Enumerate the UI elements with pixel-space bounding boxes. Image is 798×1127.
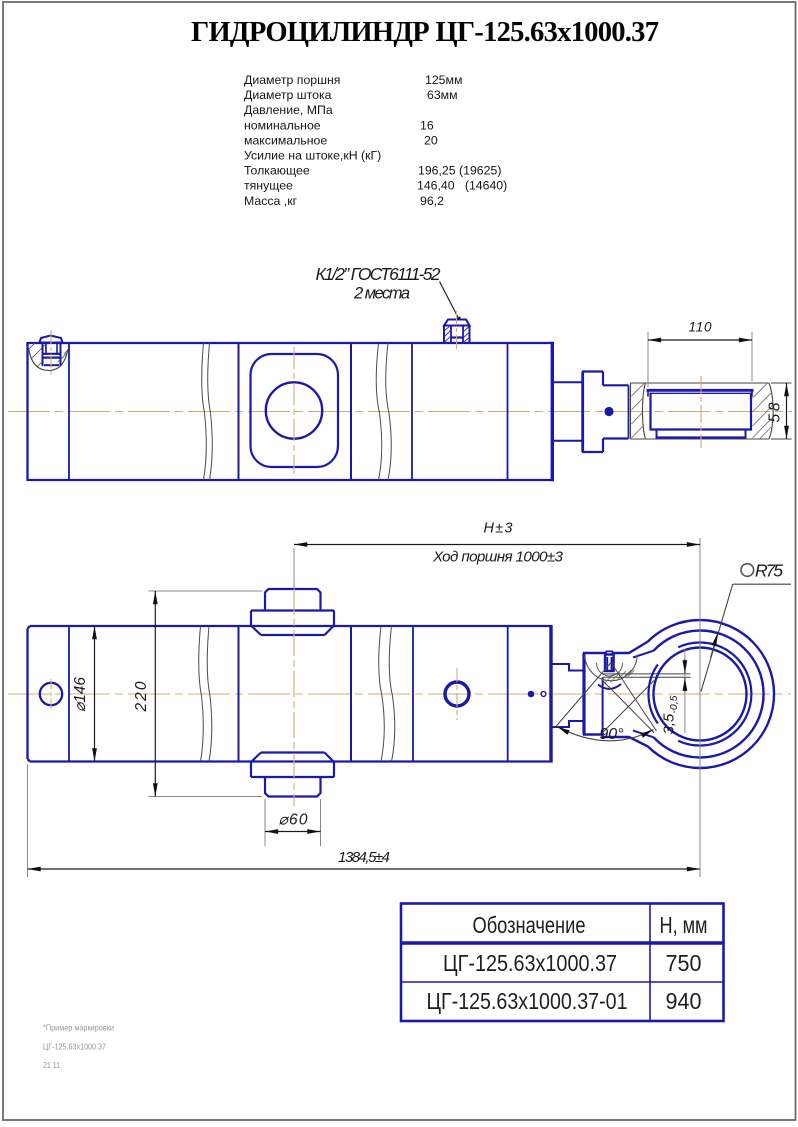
svg-text:ЦГ-125.63х1000.37: ЦГ-125.63х1000.37 <box>43 1042 106 1052</box>
svg-text:Ход поршня 1000±3: Ход поршня 1000±3 <box>432 549 564 566</box>
svg-text:Усилие на штоке,кН (кГ): Усилие на штоке,кН (кГ) <box>244 149 381 163</box>
svg-text:Давление, МПа: Давление, МПа <box>244 103 333 117</box>
svg-text:Масса ,кг: Масса ,кг <box>244 194 298 208</box>
svg-text:Диаметр поршня: Диаметр поршня <box>244 73 340 87</box>
svg-text:Диаметр штока: Диаметр штока <box>244 88 332 102</box>
svg-text:2 места: 2 места <box>353 285 410 303</box>
svg-text:максимальное: максимальное <box>244 133 327 147</box>
svg-text:Обозначение: Обозначение <box>473 912 586 938</box>
svg-text:125мм: 125мм <box>425 73 462 87</box>
svg-text:21 11: 21 11 <box>43 1060 60 1070</box>
svg-text:220: 220 <box>133 681 150 712</box>
svg-text:номинальное: номинальное <box>244 118 321 132</box>
svg-text:63мм: 63мм <box>427 88 458 102</box>
svg-text:R75: R75 <box>755 561 783 581</box>
svg-text:940: 940 <box>666 988 702 1014</box>
svg-text:⌀146: ⌀146 <box>72 677 89 712</box>
svg-text:1384,5±4: 1384,5±4 <box>338 849 390 866</box>
svg-text:16: 16 <box>420 118 434 132</box>
svg-text:Н, мм: Н, мм <box>660 912 708 938</box>
svg-text:ГИДРОЦИЛИНДР ЦГ-125.63х1000.3: ГИДРОЦИЛИНДР ЦГ-125.63х1000.37 <box>191 17 659 48</box>
svg-text:тянущее: тянущее <box>244 179 293 193</box>
svg-text:ЦГ-125.63х1000.37-01: ЦГ-125.63х1000.37-01 <box>427 988 628 1014</box>
svg-text:H±3: H±3 <box>484 521 513 537</box>
svg-text:196,25 (19625): 196,25 (19625) <box>418 164 501 178</box>
svg-text:ЦГ-125.63х1000.37: ЦГ-125.63х1000.37 <box>443 950 617 976</box>
svg-text:К1/2” ГОСТ6111-52: К1/2” ГОСТ6111-52 <box>316 264 441 284</box>
svg-text:⌀60: ⌀60 <box>279 812 308 829</box>
svg-text:110: 110 <box>689 320 712 335</box>
svg-text:750: 750 <box>666 950 702 976</box>
svg-text:20: 20 <box>424 133 438 147</box>
svg-text:146,40 (14640): 146,40 (14640) <box>417 179 507 193</box>
svg-text:Толкающее: Толкающее <box>244 164 310 178</box>
svg-text:*Пример маркировки: *Пример маркировки <box>43 1023 114 1033</box>
svg-text:96,2: 96,2 <box>420 194 444 208</box>
svg-text:90°: 90° <box>599 726 624 743</box>
